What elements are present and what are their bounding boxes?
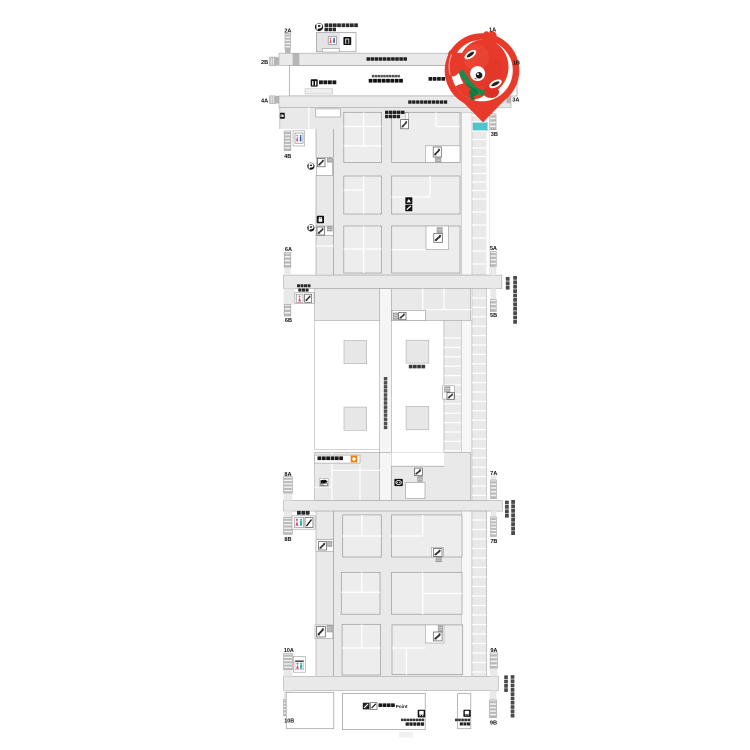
svg-text:1B: 1B — [513, 60, 520, 66]
svg-text:Point: Point — [396, 704, 408, 710]
svg-text:5A: 5A — [490, 246, 497, 252]
svg-text:2B: 2B — [261, 60, 268, 66]
svg-text:4A: 4A — [261, 99, 268, 105]
svg-text:3A: 3A — [512, 97, 519, 103]
svg-text:8B: 8B — [284, 537, 291, 543]
svg-text:5B: 5B — [490, 313, 497, 319]
svg-text:6B: 6B — [285, 318, 292, 324]
svg-text:3B: 3B — [491, 132, 498, 138]
svg-text:2A: 2A — [284, 28, 291, 34]
svg-text:10B: 10B — [284, 719, 294, 725]
svg-text:9B: 9B — [490, 720, 497, 726]
svg-text:4B: 4B — [284, 154, 291, 160]
svg-text:10A: 10A — [284, 648, 294, 654]
svg-text:7B: 7B — [490, 539, 497, 545]
